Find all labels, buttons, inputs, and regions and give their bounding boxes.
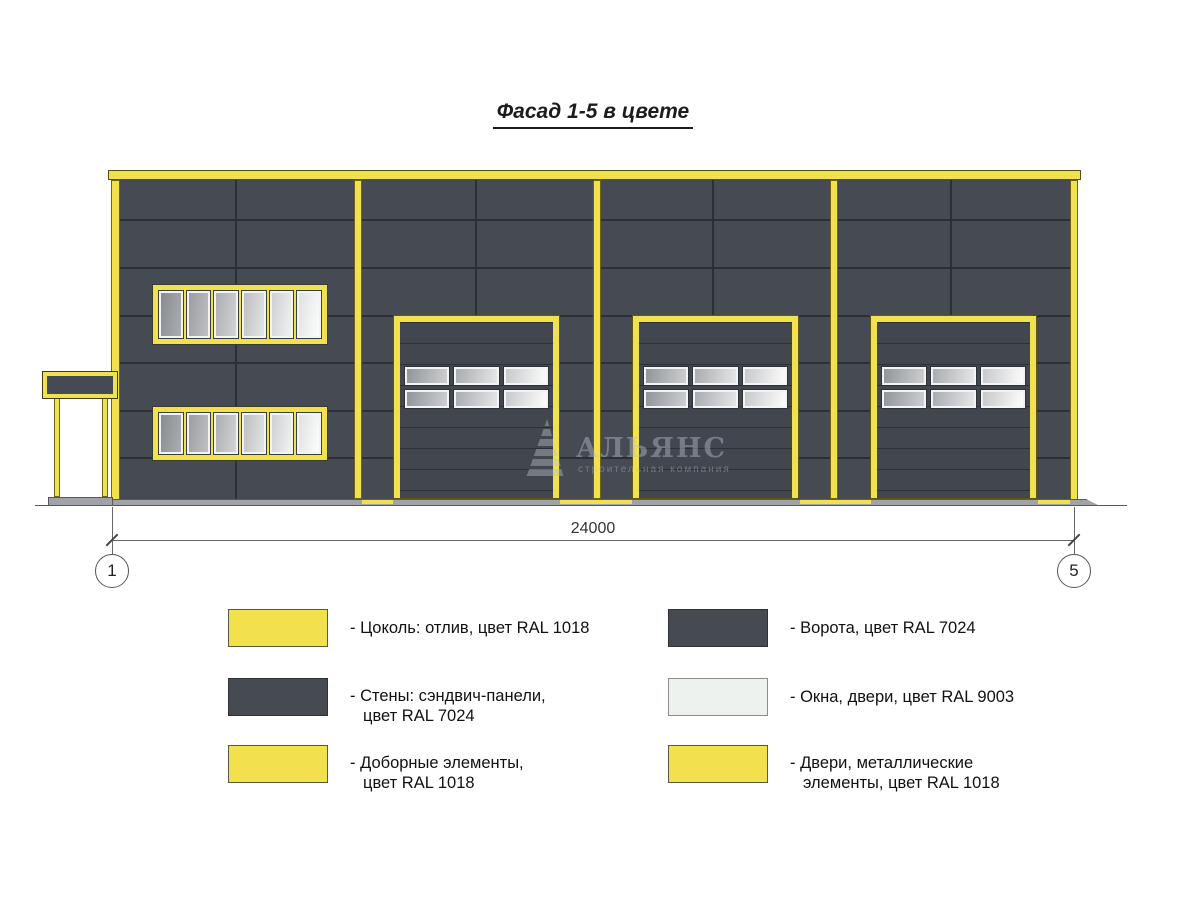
window-pane [241, 290, 267, 339]
legend-swatch-windows-doors [668, 678, 768, 716]
window-pane [158, 290, 184, 339]
legend-label-windows-doors: - Окна, двери, цвет RAL 9003 [790, 687, 1014, 707]
legend-label-metal-doors: - Двери, металлические элементы, цвет RA… [790, 753, 1000, 793]
garage-door-3 [870, 315, 1037, 499]
drawing-title: Фасад 1-5 в цвете [0, 100, 1186, 129]
yellow-trim-strip [830, 180, 838, 499]
legend-label-line: - Двери, металлические [803, 753, 1000, 773]
plinth-flashing-yellow [362, 499, 393, 504]
legend-label-plinth: - Цоколь: отлив, цвет RAL 1018 [350, 618, 589, 638]
legend-label-line: цвет RAL 1018 [363, 773, 524, 793]
dimension-line [112, 540, 1074, 541]
window-pane [296, 290, 322, 339]
roof-parapet-flashing [108, 170, 1081, 180]
drawing-title-text: Фасад 1-5 в цвете [493, 100, 693, 129]
plinth-flashing-yellow [800, 499, 871, 504]
window-pane [213, 290, 239, 339]
door-window [881, 389, 927, 409]
door-window-row [404, 366, 549, 386]
plinth-flashing-yellow [560, 499, 632, 504]
yellow-trim-strip [354, 180, 362, 499]
legend-label-line: цвет RAL 7024 [363, 706, 546, 726]
window-pane [158, 412, 184, 455]
entrance-canopy [43, 372, 117, 398]
door-window [453, 389, 499, 409]
legend-swatch-accessories [228, 745, 328, 783]
plinth-flashing-yellow [1038, 499, 1070, 504]
building-right-edge-trim [1070, 180, 1078, 500]
window-pane [241, 412, 267, 455]
legend-swatch-walls [228, 678, 328, 716]
door-window [930, 389, 976, 409]
canopy-post [102, 397, 108, 497]
window-band-upper [152, 284, 328, 345]
building-left-edge-trim [111, 180, 120, 500]
door-window-row [404, 389, 549, 409]
window-pane [186, 412, 212, 455]
legend-label-line: элементы, цвет RAL 1018 [803, 773, 1000, 793]
extension-line-right [1074, 507, 1075, 554]
window-panes [158, 412, 322, 455]
legend-label-line: - Цоколь: отлив, цвет RAL 1018 [363, 618, 589, 638]
axis-marker-1: 1 [95, 554, 129, 588]
door-window-row [881, 366, 1026, 386]
legend-label-line: - Ворота, цвет RAL 7024 [803, 618, 976, 638]
drawing-sheet: Фасад 1-5 в цвете [0, 0, 1200, 900]
axis-marker-5: 5 [1057, 554, 1091, 588]
door-window [930, 366, 976, 386]
door-window [881, 366, 927, 386]
dimension-value: 24000 [543, 520, 643, 538]
door-window [453, 366, 499, 386]
door-window-row [643, 389, 788, 409]
door-window [692, 366, 738, 386]
window-pane [269, 290, 295, 339]
door-window-row [643, 366, 788, 386]
door-window [643, 366, 689, 386]
door-window [980, 389, 1026, 409]
window-band-lower [152, 406, 328, 461]
legend-label-line: - Стены: сэндвич-панели, [363, 686, 546, 706]
door-window [404, 366, 450, 386]
legend-label-line: - Доборные элементы, [363, 753, 524, 773]
canopy-post [54, 397, 60, 497]
legend-swatch-plinth [228, 609, 328, 647]
door-window [692, 389, 738, 409]
window-pane [213, 412, 239, 455]
legend-swatch-metal-doors [668, 745, 768, 783]
door-window [742, 366, 788, 386]
legend-label-walls: - Стены: сэндвич-панели, цвет RAL 7024 [350, 686, 546, 726]
garage-door-panel [877, 322, 1030, 498]
watermark-company-name: АЛЬЯНС [576, 433, 727, 464]
window-pane [296, 412, 322, 455]
extension-line-left [112, 507, 113, 554]
window-pane [186, 290, 212, 339]
door-window [503, 389, 549, 409]
legend-label-accessories: - Доборные элементы, цвет RAL 1018 [350, 753, 524, 793]
legend-label-line: - Окна, двери, цвет RAL 9003 [803, 687, 1014, 707]
axis-marker-5-label: 5 [1069, 561, 1078, 581]
window-panes [158, 290, 322, 339]
door-window [980, 366, 1026, 386]
watermark-tagline: строительная компания [578, 464, 731, 475]
door-window [742, 389, 788, 409]
axis-marker-1-label: 1 [107, 561, 116, 581]
door-window [643, 389, 689, 409]
legend-label-gates: - Ворота, цвет RAL 7024 [790, 618, 976, 638]
door-window [503, 366, 549, 386]
window-pane [269, 412, 295, 455]
entrance-step [48, 497, 113, 506]
legend-swatch-gates [668, 609, 768, 647]
door-window [404, 389, 450, 409]
door-window-row [881, 389, 1026, 409]
